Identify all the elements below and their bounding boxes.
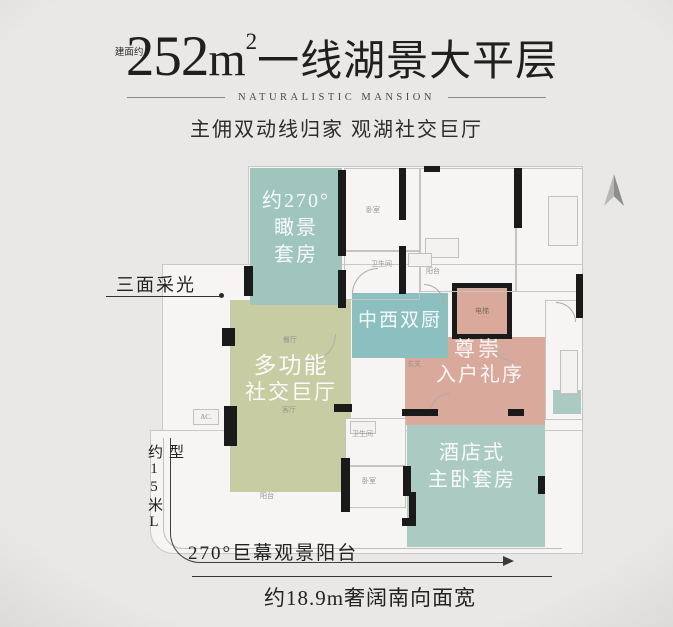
subtitle: NATURALISTIC MANSION bbox=[238, 92, 435, 103]
daylight-leader-dot bbox=[219, 293, 224, 298]
wall bbox=[576, 274, 583, 318]
title-unit: m bbox=[208, 33, 245, 86]
wall bbox=[514, 168, 522, 228]
foyer-label: 玄关 bbox=[407, 360, 421, 368]
living-label: 客厅 bbox=[282, 406, 296, 414]
closet-fixture bbox=[560, 350, 578, 394]
side-dimension-label: 约15米L型 bbox=[144, 444, 186, 546]
balcony-top-label: 阳台 bbox=[426, 267, 440, 275]
view-suite-line1: 约270° bbox=[252, 188, 340, 215]
wall bbox=[399, 168, 406, 220]
ac-label: AC. bbox=[200, 413, 211, 421]
subtitle-line-left bbox=[127, 97, 225, 98]
wall bbox=[402, 409, 438, 416]
elevator-label: 电梯 bbox=[475, 307, 489, 315]
wall bbox=[424, 166, 440, 172]
page-title: 建面约252m2一线湖景大平层 bbox=[0, 24, 673, 89]
north-arrow-icon bbox=[604, 174, 624, 206]
bedroom-top-label: 卧室 bbox=[366, 206, 380, 214]
daylight-label: 三面采光 bbox=[116, 271, 196, 297]
subtitle-line-right bbox=[448, 97, 546, 98]
entry-line2: 入户礼序 bbox=[432, 362, 528, 389]
daylight-leader-line bbox=[106, 296, 222, 297]
view-suite-line3: 套房 bbox=[252, 242, 340, 269]
title-text: 一线湖景大平层 bbox=[257, 39, 558, 85]
wall bbox=[508, 409, 524, 416]
balcony-note-label: 270°巨幕观景阳台 bbox=[188, 538, 358, 565]
wall bbox=[222, 328, 235, 346]
wall bbox=[399, 246, 406, 294]
bath-top-label: 卫生间 bbox=[371, 260, 392, 268]
bath-lower-label: 卫生间 bbox=[352, 430, 373, 438]
title-unit-sup: 2 bbox=[246, 29, 258, 54]
dining-label: 餐厅 bbox=[283, 336, 297, 344]
hall-label: 多功能 社交巨厅 bbox=[240, 352, 342, 406]
width-dimension-line bbox=[192, 576, 552, 577]
cabinet-fixture bbox=[548, 196, 578, 246]
sink-fixture bbox=[408, 253, 432, 267]
wall bbox=[338, 270, 346, 308]
balcony-arrow-icon bbox=[503, 556, 514, 566]
entry-line1: 尊崇 bbox=[447, 336, 509, 363]
view-suite-label: 约270° 瞰景 套房 bbox=[252, 188, 340, 269]
tagline: 主佣双动线归家 观湖社交巨厅 bbox=[0, 113, 673, 142]
wall bbox=[244, 266, 253, 296]
view-suite-line2: 瞰景 bbox=[252, 215, 340, 242]
ac-unit: AC. bbox=[193, 409, 219, 425]
wall bbox=[538, 476, 545, 494]
subtitle-row: NATURALISTIC MANSION bbox=[0, 92, 673, 103]
room-bedroom-top bbox=[344, 168, 420, 252]
south-width-label: 约18.9m奢阔南向面宽 bbox=[170, 582, 570, 612]
area-prefix: 建面约 bbox=[115, 48, 126, 59]
kitchen-label: 中西双厨 bbox=[354, 307, 446, 334]
title-area-number: 252 bbox=[126, 25, 209, 88]
poster-floorplan: 建面约252m2一线湖景大平层 NATURALISTIC MANSION 主佣双… bbox=[0, 0, 673, 627]
hall-line1: 多功能 bbox=[240, 352, 342, 379]
hall-line2: 社交巨厅 bbox=[240, 379, 342, 406]
